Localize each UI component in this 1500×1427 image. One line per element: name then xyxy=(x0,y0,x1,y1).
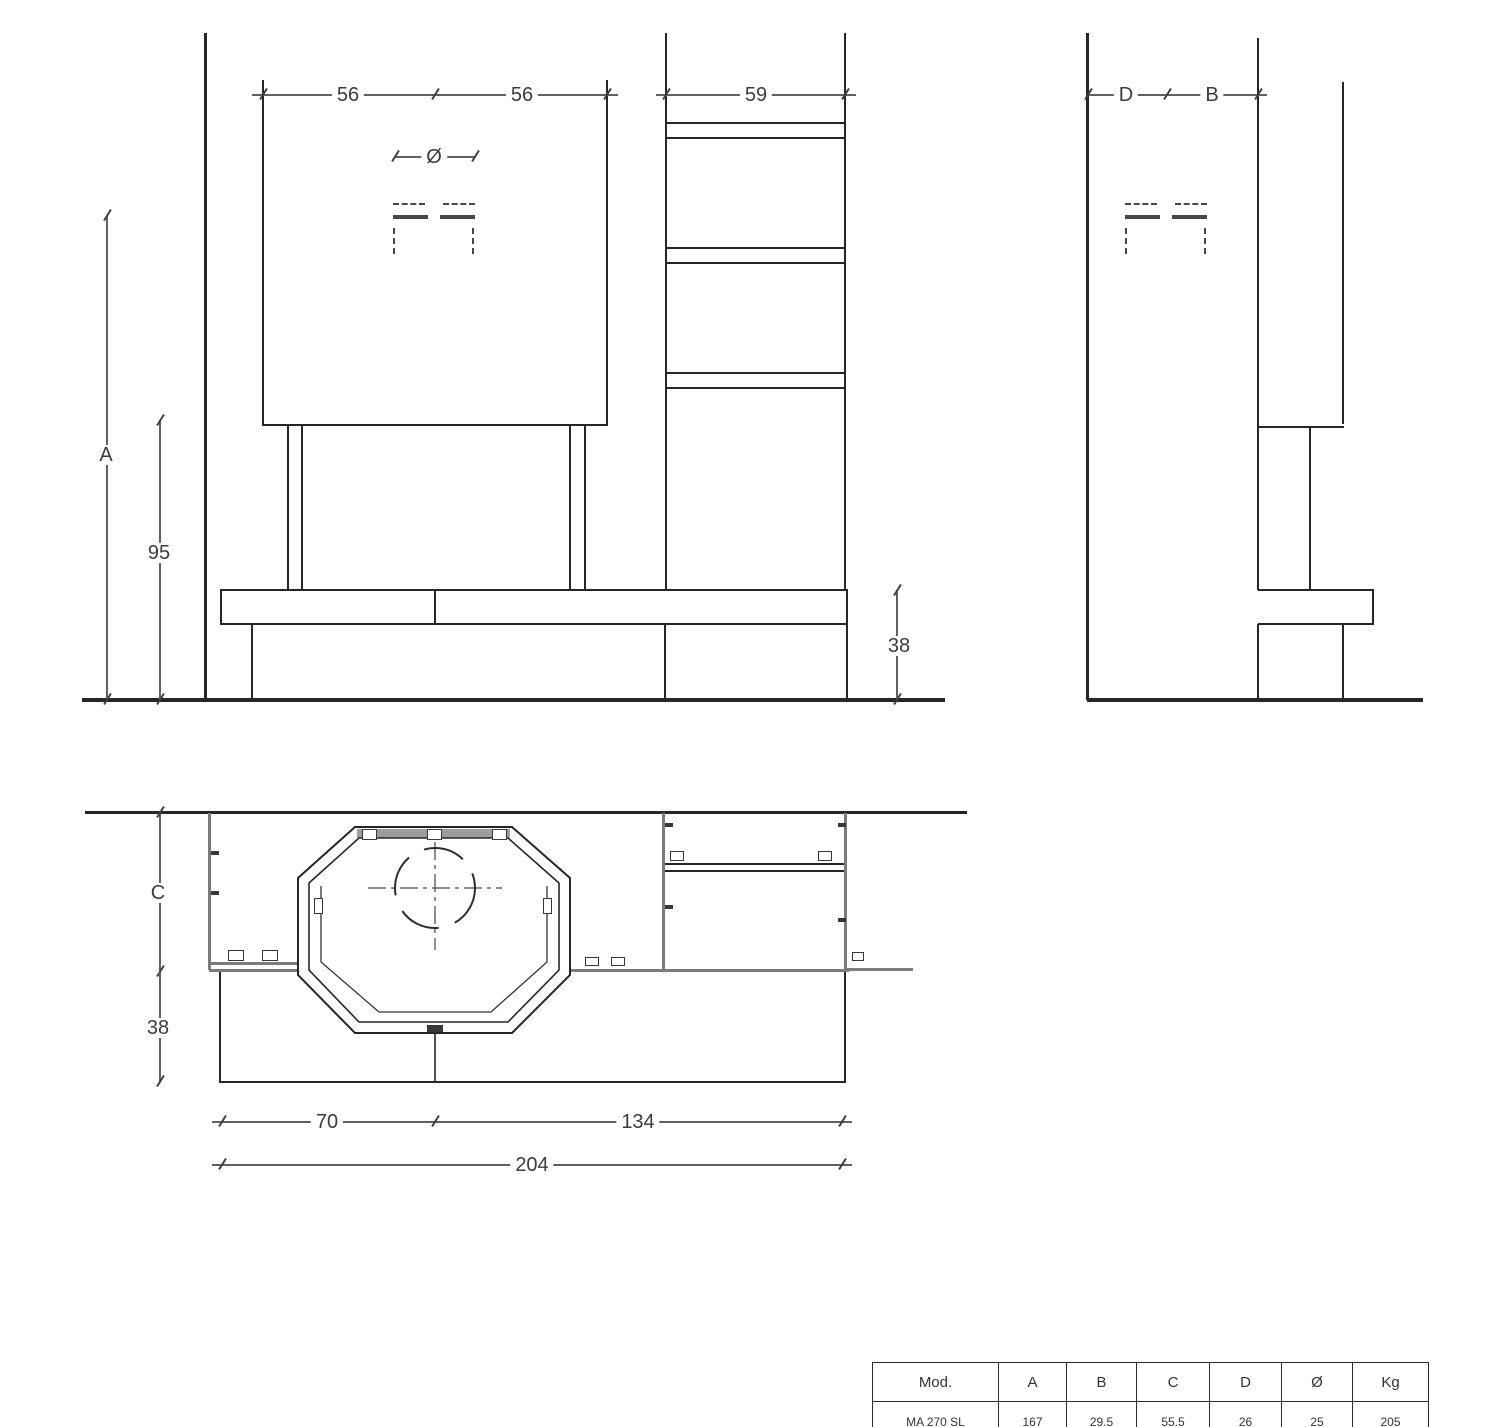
bench-joint xyxy=(434,589,436,625)
spec-table: Mod. A B C D Ø Kg MA 270 SL 167 29.5 55.… xyxy=(872,1362,1429,1427)
flue-circle xyxy=(395,848,475,928)
spec-value-c: 55.5 xyxy=(1137,1402,1210,1427)
fixing-tab xyxy=(838,823,846,827)
spec-value-model: MA 270 SL xyxy=(873,1402,999,1427)
bench-bottom-edge xyxy=(220,623,848,625)
shelf-channel-return xyxy=(846,968,913,971)
shelf-slab-line xyxy=(665,137,846,139)
plinth-left-edge xyxy=(251,624,253,700)
shelf-slab-line xyxy=(665,387,846,389)
flue-connection-symbol xyxy=(1125,228,1127,254)
bench-top-edge xyxy=(1258,589,1374,591)
shelf-channel-left-wall xyxy=(662,813,665,970)
bench-left-edge xyxy=(220,589,222,625)
body-front-edge xyxy=(1257,624,1259,700)
dim-label-56-right: 56 xyxy=(506,85,538,105)
dim-label-70: 70 xyxy=(311,1112,343,1132)
dim-label-56-left: 56 xyxy=(332,85,364,105)
firebox-liner-outline xyxy=(321,886,547,1012)
dim-label-A: A xyxy=(94,445,117,465)
spec-header-diameter: Ø xyxy=(1282,1363,1353,1402)
shelf-slab-line xyxy=(665,122,846,124)
dim-line-sections xyxy=(212,1121,852,1123)
shelf-front-line xyxy=(665,863,844,865)
hood-bottom-edge xyxy=(1258,426,1344,428)
right-leg-outline xyxy=(584,425,586,590)
dim-label-B: B xyxy=(1200,85,1223,105)
left-leg-outline xyxy=(301,425,303,590)
flue-connection-symbol xyxy=(393,215,428,219)
fixing-tab xyxy=(665,823,673,827)
dim-label-38-plan: 38 xyxy=(142,1018,174,1038)
flue-connection-symbol xyxy=(393,203,425,205)
spec-header-kg: Kg xyxy=(1353,1363,1429,1402)
platform-edge-line xyxy=(209,969,849,972)
floor-line xyxy=(1087,698,1423,702)
bench-front-edge xyxy=(1372,589,1374,625)
fixing-tab xyxy=(211,891,219,895)
pedestal-front-edge xyxy=(1309,428,1311,590)
liner-handle xyxy=(314,898,323,914)
spec-header-c: C xyxy=(1137,1363,1210,1402)
flue-connection-symbol xyxy=(1204,228,1206,254)
mounting-clip xyxy=(228,950,244,961)
flue-connection-symbol xyxy=(443,203,475,205)
plan-firebox-graphic xyxy=(0,0,1500,1427)
bench-right-edge xyxy=(844,972,846,1083)
dim-label-D: D xyxy=(1114,85,1138,105)
flue-connection-symbol xyxy=(1125,215,1160,219)
spec-table-value-row: MA 270 SL 167 29.5 55.5 26 25 205 xyxy=(873,1402,1429,1427)
flue-connection-symbol xyxy=(440,215,475,219)
wall-line xyxy=(85,811,967,814)
left-leg-outline xyxy=(287,425,289,590)
shelf-slab-line xyxy=(665,262,846,264)
dim-tick xyxy=(103,209,112,221)
mounting-clip xyxy=(852,952,864,961)
fixing-tab xyxy=(838,918,846,922)
dim-tick xyxy=(893,584,902,596)
hood-left-edge xyxy=(262,80,264,425)
dim-label-59: 59 xyxy=(740,85,772,105)
hood-right-edge xyxy=(606,80,608,425)
mounting-clip xyxy=(611,957,625,966)
spec-header-b: B xyxy=(1067,1363,1137,1402)
spec-value-a: 167 xyxy=(999,1402,1067,1427)
spec-header-d: D xyxy=(1210,1363,1282,1402)
centerline-anchor xyxy=(427,1025,443,1032)
body-front-edge xyxy=(1257,38,1259,590)
fixing-tab xyxy=(665,905,673,909)
firebox-outer-octagon xyxy=(298,827,570,1033)
spec-value-diameter: 25 xyxy=(1282,1402,1353,1427)
bench-top-edge xyxy=(220,589,848,591)
bench-left-edge xyxy=(219,972,221,1083)
hood-bottom-edge xyxy=(262,424,608,426)
shelf-slab-line xyxy=(665,372,846,374)
flue-connection-symbol xyxy=(1175,203,1207,205)
mounting-clip xyxy=(492,829,507,840)
dim-label-C: C xyxy=(146,883,170,903)
spec-table-header-row: Mod. A B C D Ø Kg xyxy=(873,1363,1429,1402)
dim-label-134: 134 xyxy=(616,1112,659,1132)
technical-drawing-canvas: 56 56 59 Ø A 95 38 xyxy=(0,0,1500,1427)
dim-label-95: 95 xyxy=(143,543,175,563)
floor-line xyxy=(82,698,945,702)
shelf-column-right-edge xyxy=(844,33,846,590)
bench-bottom-edge xyxy=(1258,623,1374,625)
hood-front-edge xyxy=(1342,82,1344,424)
flue-connection-symbol xyxy=(393,228,395,254)
left-channel-return xyxy=(208,962,298,965)
spec-header-mod: Mod. xyxy=(873,1363,999,1402)
mounting-clip xyxy=(585,957,599,966)
flue-connection-symbol xyxy=(472,228,474,254)
spec-value-d: 26 xyxy=(1210,1402,1282,1427)
plinth-right-edge xyxy=(846,624,848,700)
shelf-front-line xyxy=(665,870,844,872)
spec-value-kg: 205 xyxy=(1353,1402,1429,1427)
bench-right-edge xyxy=(846,589,848,625)
wall-line xyxy=(1086,33,1089,700)
right-leg-outline xyxy=(569,425,571,590)
mounting-clip xyxy=(362,829,377,840)
spec-value-b: 29.5 xyxy=(1067,1402,1137,1427)
dim-tick xyxy=(156,965,165,977)
mounting-clip xyxy=(670,851,684,861)
mounting-clip xyxy=(818,851,832,861)
bench-front-edge xyxy=(219,1081,846,1083)
flue-connection-symbol xyxy=(1172,215,1207,219)
dim-tick xyxy=(156,1075,165,1087)
shelf-channel-right-wall xyxy=(844,813,847,970)
dim-label-38-front: 38 xyxy=(883,636,915,656)
shelf-slab-line xyxy=(665,247,846,249)
flue-connection-symbol xyxy=(1125,203,1157,205)
mounting-clip xyxy=(427,829,442,840)
plinth-front-edge xyxy=(1342,624,1344,700)
mounting-clip xyxy=(262,950,278,961)
shelf-column-left-edge xyxy=(665,33,667,590)
spec-header-a: A xyxy=(999,1363,1067,1402)
fixing-tab xyxy=(211,851,219,855)
dim-tick xyxy=(156,414,165,426)
wall-line xyxy=(204,33,207,700)
liner-handle xyxy=(543,898,552,914)
firebox-inner-octagon xyxy=(309,838,559,1022)
dim-label-flue-diameter: Ø xyxy=(421,147,447,167)
plinth-mid-edge xyxy=(664,624,666,700)
dim-label-204: 204 xyxy=(510,1155,553,1175)
